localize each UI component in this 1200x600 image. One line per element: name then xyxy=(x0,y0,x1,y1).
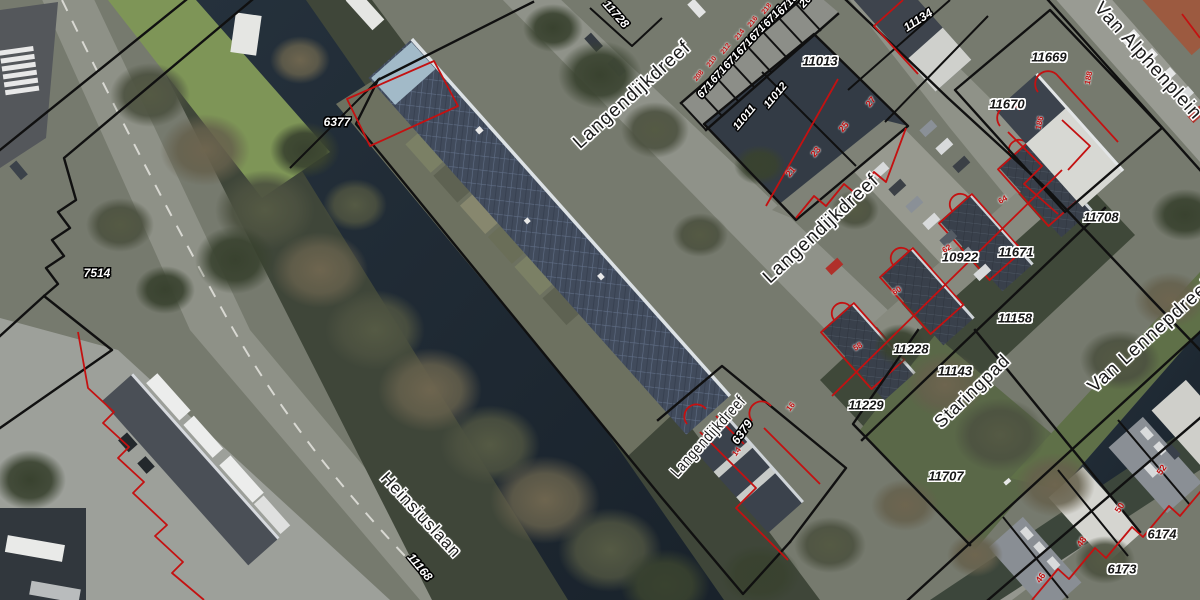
parcel-lines-red xyxy=(78,0,1200,600)
parcel-lines-black xyxy=(0,0,1200,600)
cadastral-overlay xyxy=(0,0,1200,600)
map-viewport[interactable]: LangendijkdreefLangendijkdreefLangendijk… xyxy=(0,0,1200,600)
